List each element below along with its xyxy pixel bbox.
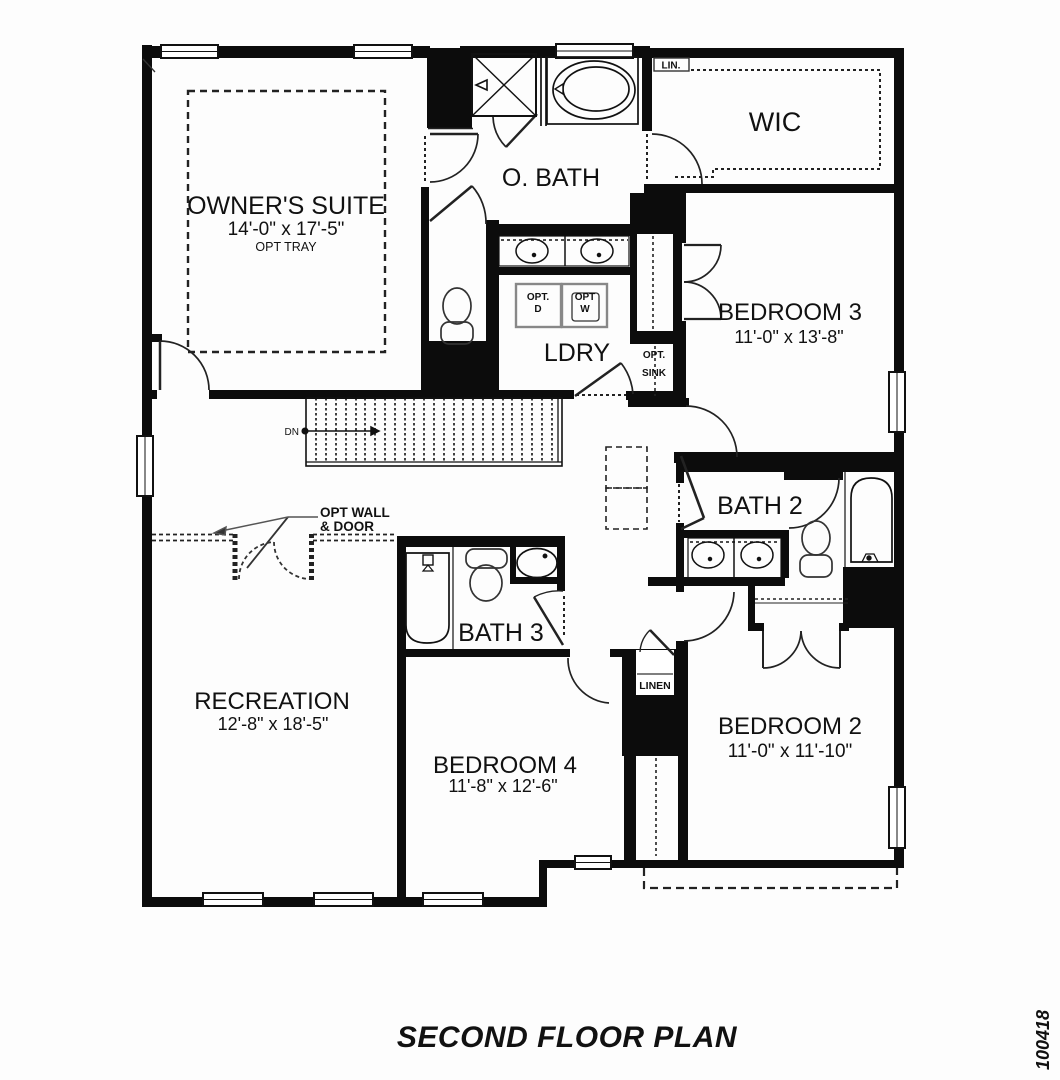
svg-text:& DOOR: & DOOR (320, 519, 374, 534)
svg-text:LIN.: LIN. (662, 61, 681, 72)
svg-text:11'-0" x 13'-8": 11'-0" x 13'-8" (734, 327, 843, 347)
svg-text:LDRY: LDRY (544, 339, 611, 367)
svg-text:DN: DN (285, 427, 299, 438)
svg-text:11'-8" x 12'-6": 11'-8" x 12'-6" (448, 776, 557, 796)
svg-text:LINEN: LINEN (639, 680, 671, 692)
svg-text:BATH 3: BATH 3 (458, 619, 544, 647)
svg-text:BATH 2: BATH 2 (717, 492, 803, 520)
svg-text:BEDROOM 2: BEDROOM 2 (718, 713, 862, 740)
svg-text:RECREATION: RECREATION (194, 688, 350, 715)
svg-text:OPT.: OPT. (527, 292, 549, 303)
svg-text:11'-0" x 11'-10": 11'-0" x 11'-10" (728, 741, 853, 762)
svg-text:W: W (580, 304, 590, 315)
svg-text:BEDROOM 4: BEDROOM 4 (433, 752, 577, 779)
svg-text:14'-0" x 17'-5": 14'-0" x 17'-5" (228, 219, 345, 240)
svg-text:OPT: OPT (575, 292, 596, 303)
svg-text:OPT TRAY: OPT TRAY (255, 240, 317, 254)
svg-text:BEDROOM 3: BEDROOM 3 (718, 299, 862, 326)
svg-text:100418: 100418 (1033, 1010, 1053, 1070)
svg-text:SECOND FLOOR PLAN: SECOND FLOOR PLAN (397, 1021, 738, 1054)
svg-text:OWNER'S SUITE: OWNER'S SUITE (187, 192, 385, 220)
svg-text:O. BATH: O. BATH (502, 164, 600, 192)
svg-text:SINK: SINK (642, 368, 667, 379)
svg-text:12'-8" x 18'-5": 12'-8" x 18'-5" (218, 714, 329, 734)
svg-text:WIC: WIC (749, 107, 801, 137)
svg-text:OPT WALL: OPT WALL (320, 505, 390, 520)
svg-text:D: D (534, 304, 541, 315)
svg-text:OPT.: OPT. (643, 350, 665, 361)
